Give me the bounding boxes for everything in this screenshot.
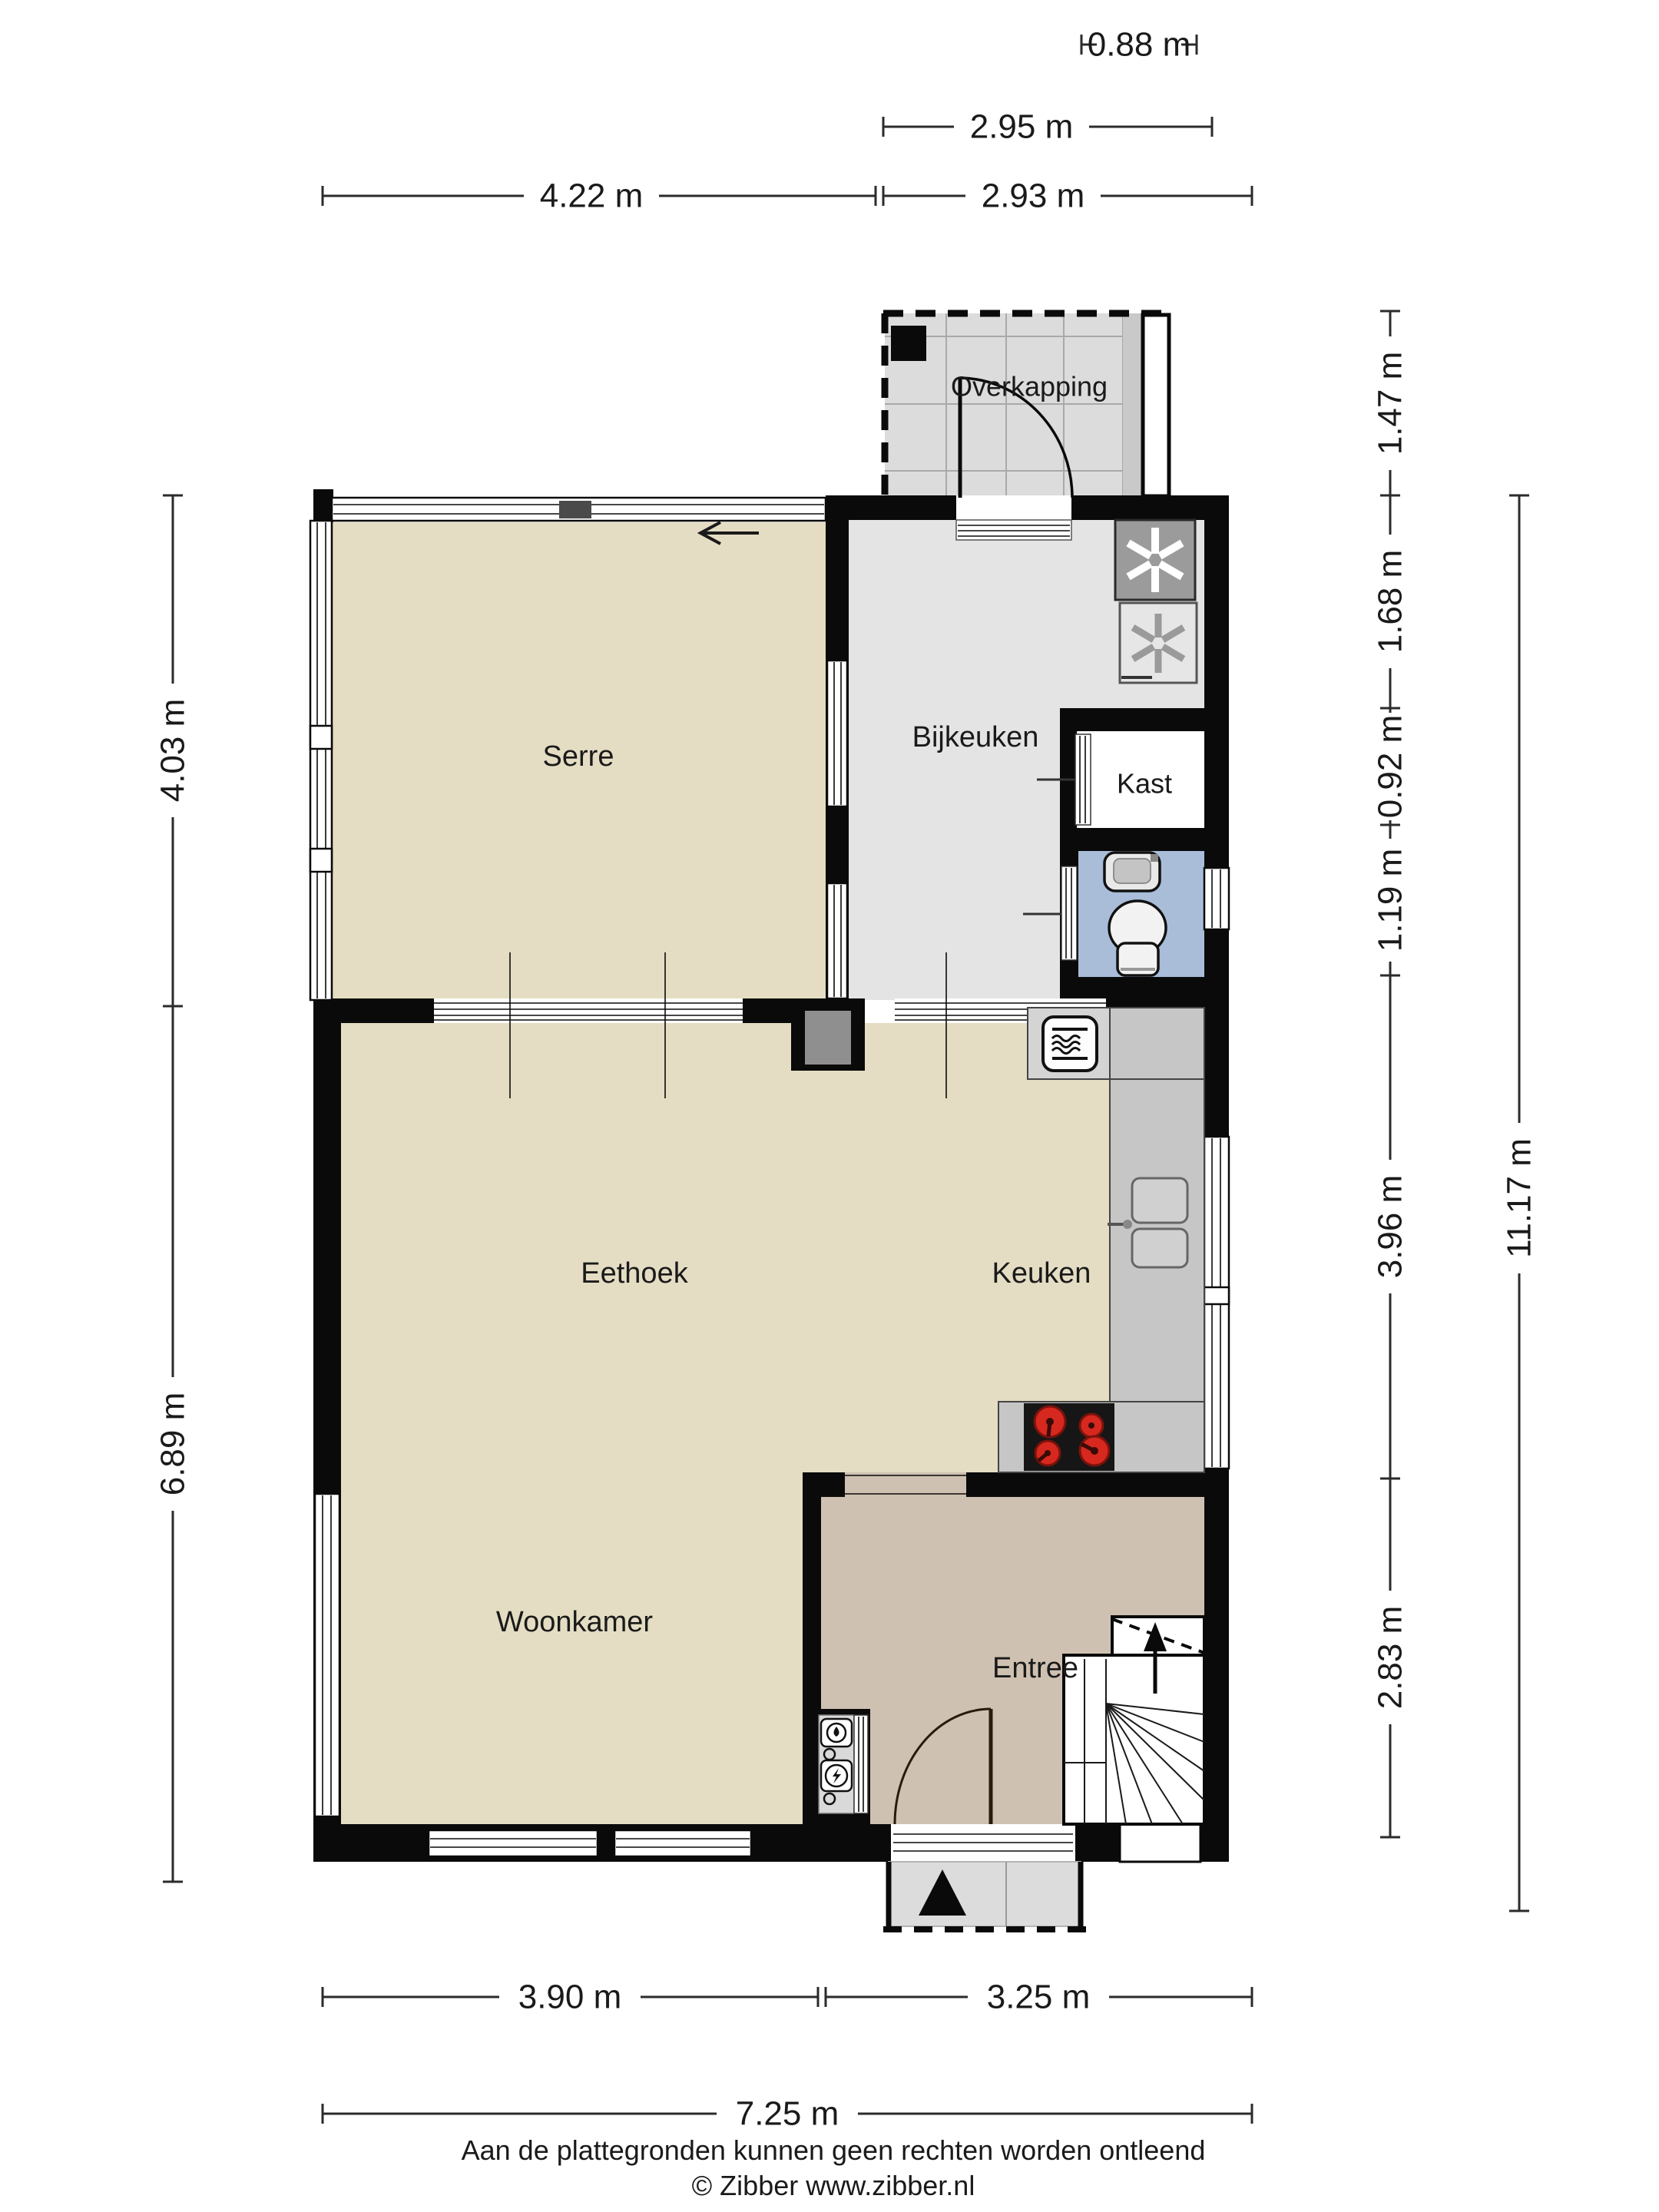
svg-text:0.92 m: 0.92 m — [1372, 715, 1409, 819]
serre-glass-mullion-1 — [310, 726, 332, 749]
dim-right-toilet: 1.19 m — [1372, 825, 1409, 975]
svg-text:4.03 m: 4.03 m — [154, 699, 192, 803]
entree-label: Entree — [992, 1652, 1078, 1684]
eethoek-label: Eethoek — [581, 1257, 688, 1290]
stove-icon — [1024, 1403, 1114, 1471]
electricity-meter-icon — [821, 1760, 852, 1791]
serre-label: Serre — [543, 740, 614, 773]
window-woonkamer-bottom-2 — [614, 1830, 751, 1856]
wall-kast-top — [1060, 708, 1204, 731]
dim-top-small: 0.88 m — [1081, 26, 1197, 64]
window-woonkamer-bottom-1 — [429, 1830, 598, 1856]
overkapping-pillar-wall — [1143, 315, 1169, 496]
dim-left-lower: 6.89 m — [154, 1006, 192, 1882]
svg-text:2.95 m: 2.95 m — [970, 108, 1074, 146]
water-meter-icon — [821, 1719, 852, 1747]
woonkamer-floor — [341, 1472, 821, 1826]
wall-keuken-entree-right — [966, 1472, 1229, 1497]
bijkeuken-label: Bijkeuken — [912, 721, 1039, 753]
svg-text:2.83 m: 2.83 m — [1372, 1606, 1409, 1710]
svg-text:3.25 m: 3.25 m — [987, 1979, 1091, 2016]
wall-top-bijkeuken-left — [826, 495, 956, 520]
washing-machine-icon — [1115, 520, 1195, 600]
svg-text:11.17 m: 11.17 m — [1501, 1138, 1538, 1258]
footer-disclaimer: Aan de plattegronden kunnen geen rechten… — [462, 2134, 1206, 2166]
woonkamer-label: Woonkamer — [496, 1606, 654, 1638]
serre-glass-mullion-2 — [310, 849, 332, 872]
overkapping-label: Overkapping — [951, 371, 1108, 402]
wall-bottom-left — [313, 1824, 891, 1862]
dim-left-upper: 4.03 m — [154, 495, 192, 1006]
bijkeuken-door-sill — [956, 520, 1071, 540]
wall-keuken-entree-left — [803, 1472, 845, 1497]
svg-text:0.88 m: 0.88 m — [1088, 26, 1191, 64]
meterkast — [819, 1715, 868, 1813]
wall-bottom-right — [1200, 1824, 1229, 1862]
dim-bottom-total: 7.25 m — [323, 2095, 1252, 2133]
svg-text:1.68 m: 1.68 m — [1372, 550, 1409, 654]
window-serre-bijkeuken-1 — [827, 661, 847, 806]
room-overkapping: Overkapping — [883, 313, 1169, 498]
dryer-icon — [1120, 603, 1197, 683]
window-serre-bijkeuken-2 — [827, 883, 847, 998]
microwave-icon — [1043, 1017, 1097, 1071]
wall-serre-top-left-stub — [313, 489, 333, 522]
svg-text:7.25 m: 7.25 m — [736, 2095, 839, 2133]
dim-bottom-left: 3.90 m — [323, 1979, 818, 2016]
overkapping-edge-strip — [1123, 313, 1143, 495]
overkapping-post — [891, 326, 926, 361]
serre-glass-wall-left — [310, 521, 332, 1000]
dim-right-keuken: 3.96 m — [1372, 975, 1409, 1479]
chimney-core — [805, 1011, 851, 1065]
kast-label: Kast — [1117, 768, 1172, 800]
window-keuken-mullion — [1204, 1287, 1229, 1304]
dim-right-overkapping: 1.47 m — [1372, 311, 1409, 495]
dim-right-bijkeuken: 1.68 m — [1372, 495, 1409, 708]
window-woonkamer-left — [315, 1494, 339, 1816]
toilet-icon — [1109, 901, 1166, 975]
wall-woonkamer-entree — [803, 1497, 821, 1709]
wall-divider-left — [332, 998, 434, 1023]
serre-top-door-segment — [559, 501, 591, 518]
wall-kast-toilet — [1060, 828, 1204, 851]
svg-text:6.89 m: 6.89 m — [154, 1392, 192, 1496]
dim-right-entree: 2.83 m — [1372, 1479, 1409, 1837]
entrance-porch — [883, 1862, 1086, 1929]
dim-right-total: 11.17 m — [1501, 495, 1538, 1911]
svg-text:3.96 m: 3.96 m — [1372, 1175, 1409, 1279]
window-toilet — [1204, 868, 1229, 929]
keuken-label: Keuken — [992, 1257, 1091, 1290]
footer-copyright: © Zibber www.zibber.nl — [692, 2170, 975, 2201]
floor-plan-canvas: Overkapping — [0, 0, 1659, 2212]
meterkast-door — [854, 1715, 868, 1813]
bottom-wall-stair-void — [1120, 1824, 1200, 1862]
dim-bottom-right: 3.25 m — [826, 1979, 1252, 2016]
dim-top-serre: 4.22 m — [323, 177, 876, 215]
dim-top-right: 2.93 m — [883, 177, 1252, 215]
washbasin-icon — [1104, 853, 1160, 891]
svg-text:3.90 m: 3.90 m — [518, 1979, 622, 2016]
dim-right-kast: 0.92 m — [1372, 708, 1409, 825]
wall-bottom-mid — [1075, 1824, 1120, 1862]
dim-top-overkapping: 2.95 m — [883, 108, 1212, 146]
svg-text:4.22 m: 4.22 m — [540, 177, 644, 215]
svg-text:2.93 m: 2.93 m — [982, 177, 1085, 215]
svg-text:1.47 m: 1.47 m — [1372, 352, 1409, 455]
svg-text:1.19 m: 1.19 m — [1372, 849, 1409, 952]
